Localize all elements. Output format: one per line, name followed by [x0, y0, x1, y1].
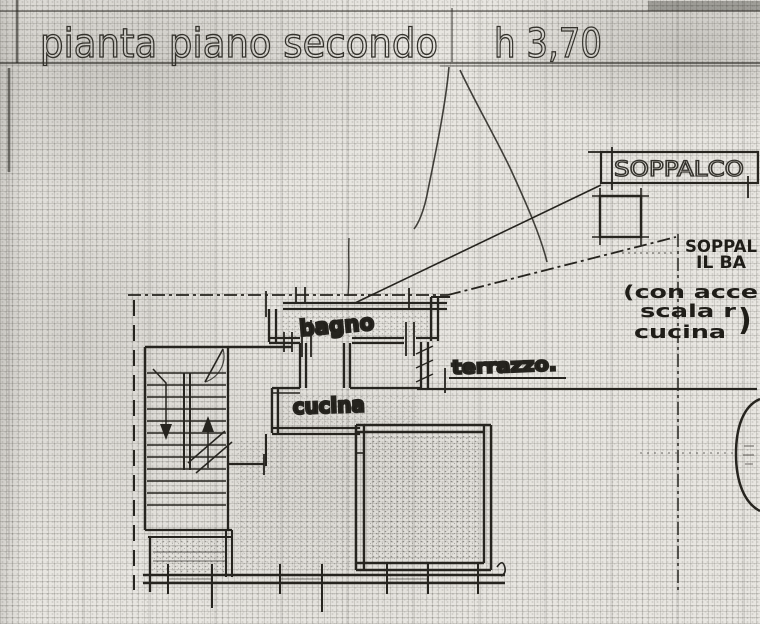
- margin-note-line-2: IL BA: [696, 253, 747, 273]
- margin-note-line-5: cucina: [634, 322, 726, 343]
- stamp-arc: [736, 399, 760, 511]
- crease-marks: [348, 67, 547, 296]
- margin-note-line-4: scala r: [640, 301, 736, 322]
- margin-note: SOPPAL IL BA (con acce scala r cucina ): [623, 237, 758, 343]
- scanned-floor-plan-page: { "title": { "text": "pianta piano secon…: [0, 0, 760, 624]
- stair-arrow-down: [160, 424, 172, 440]
- column-detail-square: [592, 188, 649, 245]
- stair-treads: [147, 373, 226, 505]
- soppalco-leader-line: [355, 185, 601, 303]
- margin-note-line-3: (con acce: [623, 282, 758, 303]
- room-textures: [154, 312, 480, 573]
- terrazzo-label: terrazzo.: [451, 353, 557, 379]
- title-block: pianta piano secondo h 3,70: [40, 21, 602, 67]
- soppalco-callout: SOPPALCO: [355, 147, 758, 303]
- page-title: pianta piano secondo: [40, 21, 438, 67]
- terrace-lines: terrazzo.: [417, 353, 757, 393]
- stair-arrow-up: [202, 416, 214, 432]
- soppalco-label: SOPPALCO: [614, 157, 744, 181]
- floor-plan-drawing: pianta piano secondo h 3,70 SOPPALCO: [0, 0, 760, 624]
- margin-note-closing-paren: ): [738, 303, 752, 338]
- ceiling-height-note: h 3,70: [494, 21, 602, 67]
